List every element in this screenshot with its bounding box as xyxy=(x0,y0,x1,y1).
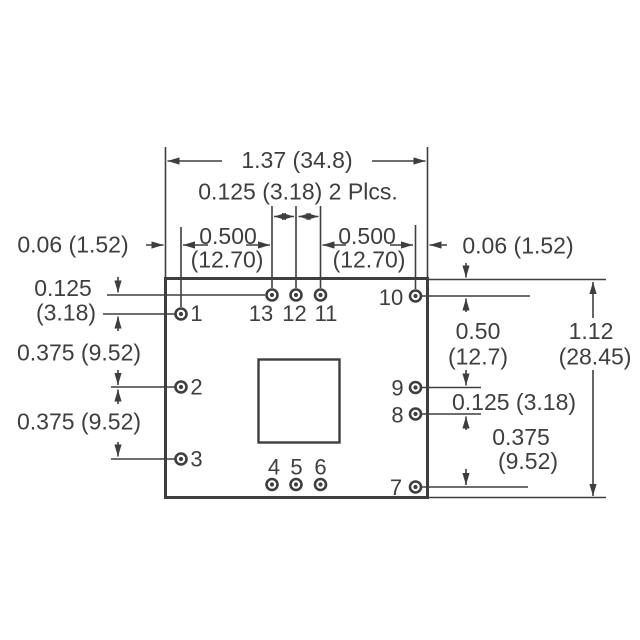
pin-9-pad xyxy=(410,382,421,393)
dim-pitch-left-in: 0.500 xyxy=(199,223,257,249)
pin-7-pad xyxy=(410,482,421,493)
pin-7-label: 7 xyxy=(390,475,402,500)
dim-right-span-bot-in: 0.375 xyxy=(492,424,550,450)
pin-3-label: 3 xyxy=(190,447,202,472)
pin-5-pad xyxy=(291,479,302,490)
pin-2-pad xyxy=(176,382,187,393)
dim-edge-offset-right: 0.06 (1.52) xyxy=(462,233,573,259)
dim-overall-height-mm: (28.45) xyxy=(559,344,632,370)
dim-right-span-top-mm: (12.7) xyxy=(448,344,508,370)
dim-right-offset-mid: 0.125 (3.18) xyxy=(452,389,576,415)
dim-pitch-right-mm: (12.70) xyxy=(333,247,406,273)
dim-edge-offset-left: 0.06 (1.52) xyxy=(17,232,128,258)
dim-left-row1-in: 0.125 xyxy=(34,275,92,301)
dim-top-pin-spacing: 0.125 (3.18) 2 Plcs. xyxy=(198,179,397,205)
drawing-canvas: 1 2 3 4 5 6 7 8 9 10 11 12 13 1.37 (34.8… xyxy=(0,0,640,640)
dim-left-row1-mm: (3.18) xyxy=(36,300,96,326)
dim-overall-height-in: 1.12 xyxy=(569,318,614,344)
dim-pitch-left-mm: (12.70) xyxy=(191,247,264,273)
pin-11-label: 11 xyxy=(315,301,338,326)
pin-8-pad xyxy=(410,409,421,420)
pin-10-pad xyxy=(410,291,421,302)
dim-pitch-right-in: 0.500 xyxy=(338,223,396,249)
pin-8-label: 8 xyxy=(391,403,403,428)
pin-11-pad xyxy=(315,290,326,301)
pin-5-label: 5 xyxy=(290,455,302,480)
dim-right-span-top-in: 0.50 xyxy=(456,318,501,344)
dimension-drawing: 1 2 3 4 5 6 7 8 9 10 11 12 13 1.37 (34.8… xyxy=(0,0,640,640)
pin-4-label: 4 xyxy=(268,455,280,480)
pin-10-label: 10 xyxy=(379,285,403,310)
pin-3-pad xyxy=(176,454,187,465)
dim-left-span-2: 0.375 (9.52) xyxy=(17,409,141,435)
pin-13-label: 13 xyxy=(249,301,273,326)
pin-6-label: 6 xyxy=(314,455,326,480)
pin-1-pad xyxy=(176,309,187,320)
center-window xyxy=(259,360,340,443)
pin-13-pad xyxy=(267,290,278,301)
pin-2-label: 2 xyxy=(190,375,202,400)
pin-12-pad xyxy=(291,290,302,301)
dim-overall-width: 1.37 (34.8) xyxy=(241,147,352,173)
dim-left-span-1: 0.375 (9.52) xyxy=(17,340,141,366)
pin-12-label: 12 xyxy=(282,301,306,326)
pin-6-pad xyxy=(315,479,326,490)
pin-9-label: 9 xyxy=(391,376,403,401)
dim-right-span-bot-mm: (9.52) xyxy=(498,448,558,474)
pin-4-pad xyxy=(267,479,278,490)
pin-1-label: 1 xyxy=(190,301,202,326)
